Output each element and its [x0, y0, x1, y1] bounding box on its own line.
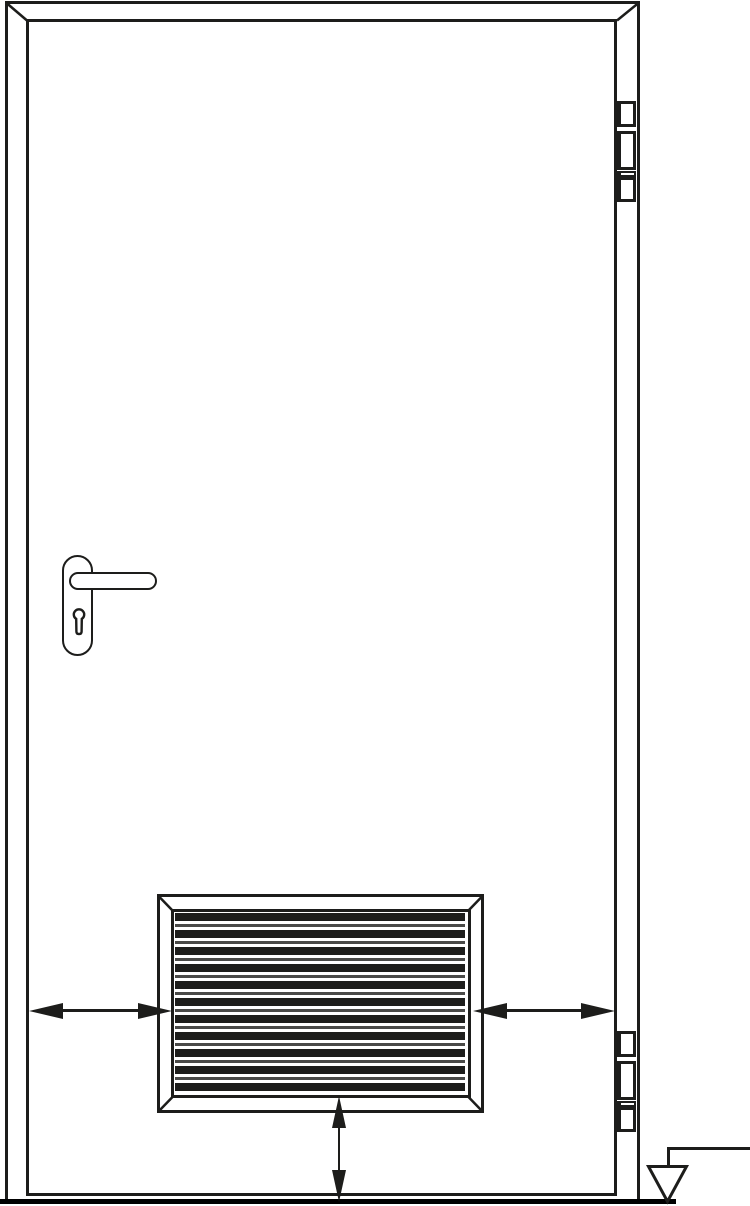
grille-slat [175, 947, 465, 955]
grille-slat-thin-line [175, 975, 465, 978]
grille-slat [175, 1032, 465, 1040]
grille-slat [175, 1066, 465, 1074]
dimension-arrow-left-head-left [29, 1003, 63, 1019]
dimension-arrow-bottom-head-up [332, 1096, 346, 1128]
grille-slat-thin-line [175, 1060, 465, 1063]
hinge-knuckle [616, 177, 636, 202]
hinge-knuckle [616, 131, 636, 170]
grille-slat [175, 964, 465, 972]
hinge-knuckle [616, 1061, 636, 1100]
door-frame-outer-right-line [637, 1, 640, 1202]
door-frame-outer-left-line [5, 1, 8, 1202]
door-frame-inner-top-line [26, 19, 617, 22]
grille-slat-thin-line [175, 941, 465, 944]
grille-slat [175, 1083, 465, 1091]
grille-slat [175, 981, 465, 989]
grille-slat-thin-line [175, 1026, 465, 1029]
euro-cylinder-keyhole-icon [69, 605, 89, 637]
grille-slat [175, 1049, 465, 1057]
dimension-arrow-right-head-left [473, 1003, 507, 1019]
floor-level-triangle-icon [645, 1163, 691, 1205]
grille-slat-thin-line [175, 1043, 465, 1046]
datum-leader-line [667, 1147, 750, 1150]
grille-slat-thin-line [175, 1077, 465, 1080]
grille-slat-thin-line [175, 992, 465, 995]
lever-handle [69, 572, 157, 590]
dimension-arrow-bottom-shaft [338, 1124, 341, 1176]
door-leaf-left-edge [26, 19, 29, 1196]
door-technical-drawing [0, 0, 750, 1206]
hinge-knuckle [616, 1107, 636, 1132]
grille-slat-thin-line [175, 1009, 465, 1012]
dimension-arrow-left-head-right [138, 1003, 172, 1019]
grille-slat [175, 913, 465, 921]
door-frame-outer-top-line [5, 1, 640, 4]
grille-slat-thin-line [175, 924, 465, 927]
dimension-arrow-right-head-right [581, 1003, 615, 1019]
grille-slat [175, 1015, 465, 1023]
door-leaf-bottom-edge [26, 1193, 617, 1196]
hinge-knuckle [616, 1031, 636, 1057]
grille-slat [175, 930, 465, 938]
dimension-arrow-left-shaft [50, 1009, 150, 1012]
grille-louvers [175, 913, 465, 1091]
grille-slat-thin-line [175, 958, 465, 961]
hinge-top [616, 101, 636, 202]
hinge-bottom [616, 1031, 636, 1132]
dimension-arrow-bottom-head-down [332, 1170, 346, 1202]
hinge-knuckle [616, 101, 636, 127]
grille-slat [175, 998, 465, 1006]
